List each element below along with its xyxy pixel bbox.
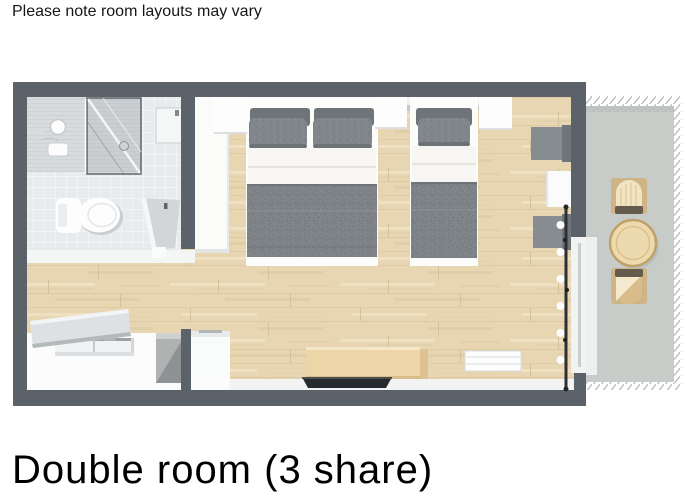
svg-text:Please note room layouts may v: Please note room layouts may vary [12, 3, 262, 20]
svg-text:Double room (3 share): Double room (3 share) [12, 448, 433, 492]
